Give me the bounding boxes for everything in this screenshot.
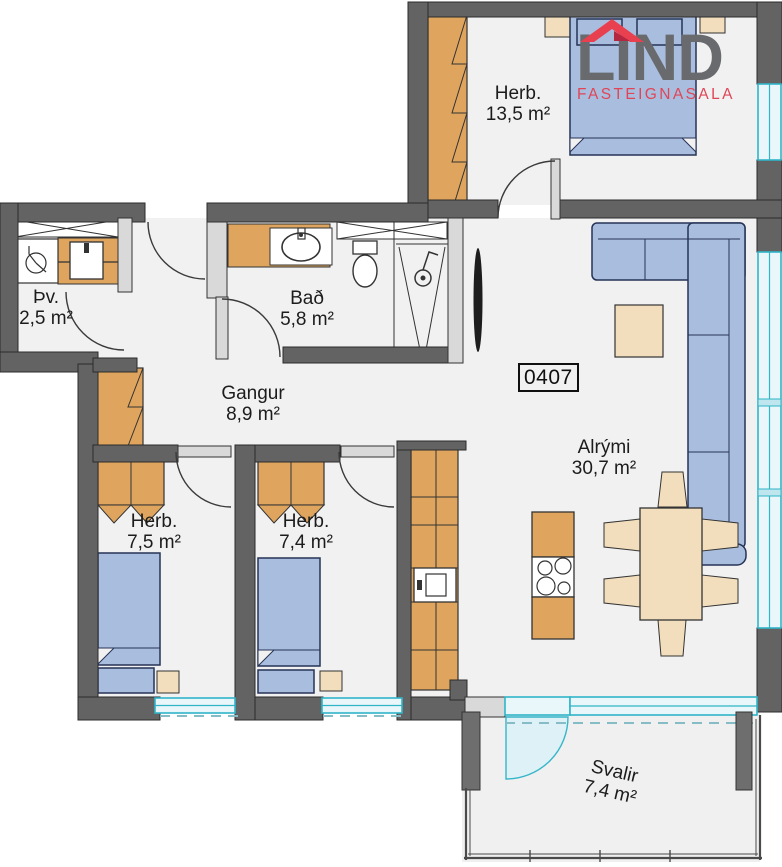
room-name: Bað (280, 289, 334, 310)
balcony-door (505, 697, 570, 715)
partition-segment (118, 218, 132, 292)
room-label-living-area: Alrými 30,7 m² (572, 438, 636, 479)
nightstand-icon (157, 671, 179, 693)
room-area: 13,5 m² (486, 105, 550, 126)
door-panel (216, 297, 228, 359)
wall-segment (757, 628, 782, 712)
single-bed-2 (258, 558, 320, 693)
partition-segment (207, 222, 227, 298)
wall-segment (428, 200, 498, 218)
oven-handle-icon (417, 580, 422, 590)
chair-icon (658, 620, 686, 656)
room-area: 8,9 m² (221, 405, 284, 426)
chair-icon (604, 519, 640, 551)
wardrobe-hall (95, 368, 143, 446)
single-bed-1 (98, 553, 160, 693)
toilet-icon (353, 241, 377, 287)
room-label-bedroom-top: Herb. 13,5 m² (486, 84, 550, 125)
wall-segment (0, 203, 18, 372)
wall-segment (283, 347, 463, 363)
window-bedroom-1 (155, 698, 235, 713)
window-right-long (758, 252, 781, 628)
balcony-post (462, 712, 480, 790)
room-area: 7,4 m² (279, 533, 333, 554)
nightstand-icon (545, 15, 572, 37)
wall-segment (255, 445, 340, 462)
room-name: Herb. (486, 84, 550, 105)
room-name: Herb. (127, 512, 181, 533)
floorplan-page: { "logo": { "title": "LIND", "subtitle":… (0, 0, 782, 867)
wall-segment (93, 445, 178, 462)
wall-segment (93, 358, 137, 372)
logo-roof-icon (576, 18, 752, 44)
room-name: Alrými (572, 438, 636, 459)
wall-segment (408, 2, 428, 218)
wall-segment (450, 680, 467, 700)
chair-icon (702, 575, 738, 607)
wardrobe-top-bedroom (428, 15, 467, 211)
floor-plan-canvas (0, 0, 782, 867)
room-area: 7,5 m² (127, 533, 181, 554)
room-name: Gangur (221, 384, 284, 405)
wall-segment (555, 200, 782, 218)
room-label-hallway: Gangur 8,9 m² (221, 384, 284, 425)
door-panel (551, 159, 560, 219)
wall-segment (78, 364, 98, 720)
kitchen-counter (411, 448, 458, 690)
chair-icon (658, 472, 687, 507)
chair-icon (604, 575, 640, 607)
wall-segment (397, 445, 411, 720)
wall-segment (78, 697, 160, 720)
coffee-table (615, 305, 663, 357)
window-bedroom-2 (322, 698, 402, 713)
room-label-bedroom-2: Herb. 7,4 m² (279, 512, 333, 553)
unit-number-badge: 0407 (518, 363, 579, 392)
room-name: Þv. (19, 288, 73, 309)
window-right-top (758, 84, 781, 160)
kitchen-island (532, 512, 574, 639)
logo-subtitle: FASTEIGNASALA (577, 86, 735, 104)
room-area: 2,5 m² (19, 309, 73, 330)
sink-icon (282, 233, 320, 261)
room-area: 30,7 m² (572, 459, 636, 480)
dining-table (640, 508, 702, 620)
wall-segment (235, 445, 255, 720)
washing-machine-icon (15, 239, 58, 283)
room-label-bedroom-1: Herb. 7,5 m² (127, 512, 181, 553)
wall-segment (397, 441, 466, 450)
chair-icon (702, 519, 738, 551)
nightstand-icon (320, 671, 342, 691)
room-label-laundry: Þv. 2,5 m² (19, 288, 73, 329)
room-area: 5,8 m² (280, 310, 334, 331)
wall-segment (408, 2, 782, 17)
door-panel (341, 446, 394, 457)
balcony-post (736, 712, 752, 790)
sliding-panel-icon (474, 248, 483, 352)
wall-segment (757, 2, 782, 84)
lind-logo: LIND FASTEIGNASALA (576, 18, 752, 110)
laundry-fixtures (15, 220, 120, 284)
wall-segment (207, 203, 428, 222)
room-label-bathroom: Bað 5,8 m² (280, 289, 334, 330)
partition-segment (448, 218, 463, 363)
door-panel (178, 446, 231, 457)
room-name: Herb. (279, 512, 333, 533)
